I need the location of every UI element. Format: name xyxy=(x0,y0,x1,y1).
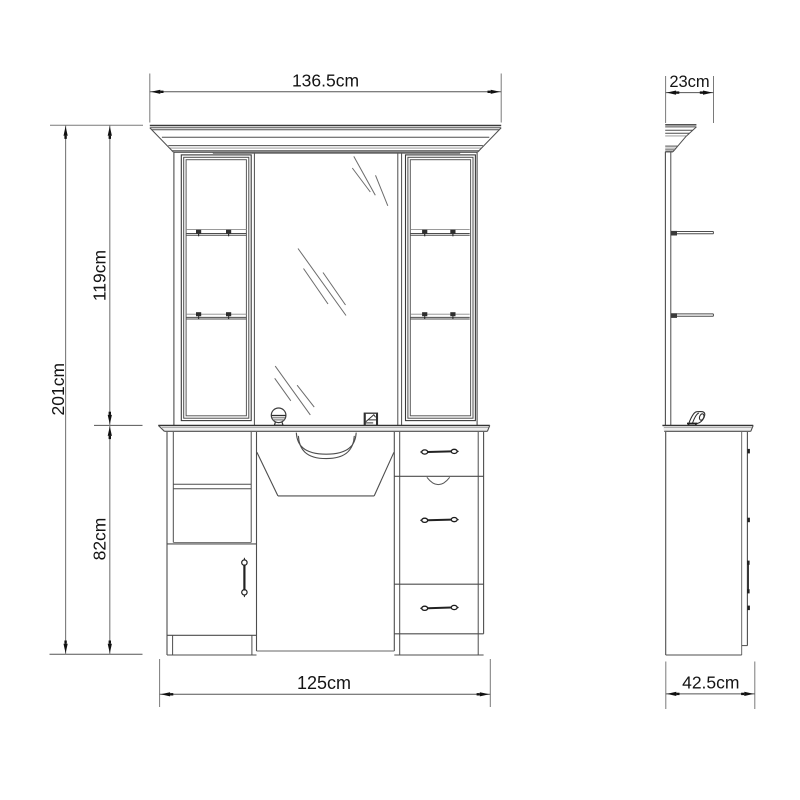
svg-text:125cm: 125cm xyxy=(297,673,351,693)
svg-text:23cm: 23cm xyxy=(669,73,709,91)
svg-text:82cm: 82cm xyxy=(90,518,110,561)
svg-text:119cm: 119cm xyxy=(90,250,110,301)
svg-text:42.5cm: 42.5cm xyxy=(682,673,739,693)
svg-text:201cm: 201cm xyxy=(48,363,68,416)
svg-text:136.5cm: 136.5cm xyxy=(292,71,359,91)
